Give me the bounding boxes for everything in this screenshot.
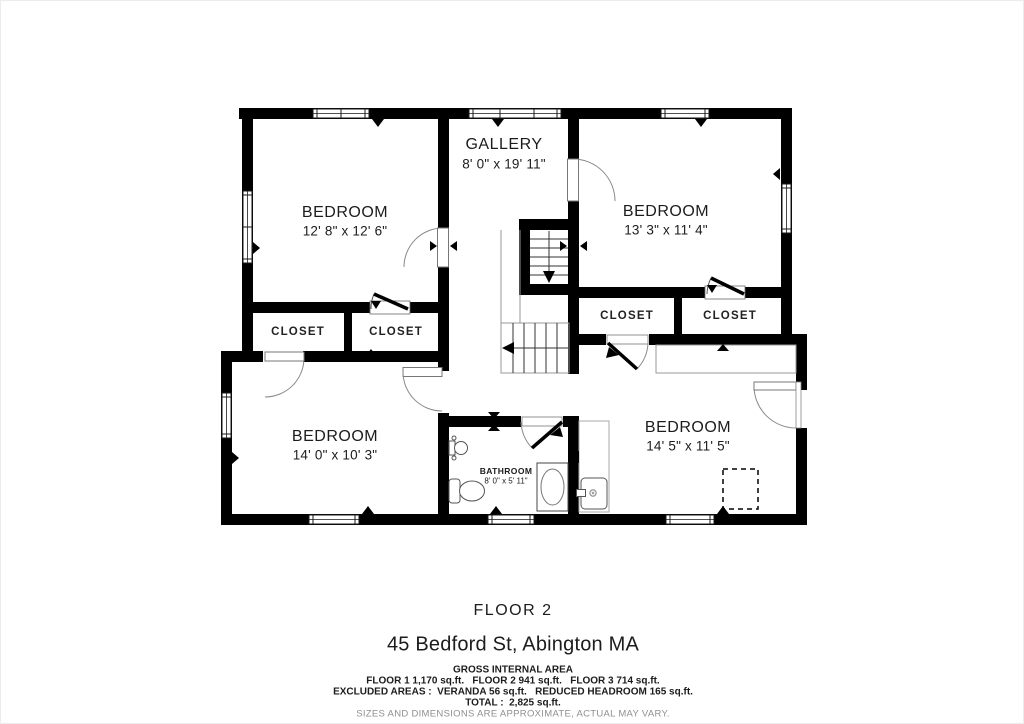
window-bedroom2-top [661,109,709,118]
excluded-areas-line: EXCLUDED AREAS : VERANDA 56 sq.ft. REDUC… [333,687,693,698]
room-label-bedroom-1: BEDROOM [302,204,388,222]
room-label-closet-3: CLOSET [600,310,654,322]
door-closet2-sliding [370,294,410,314]
door-bedroom4-right [754,382,801,428]
room-dims-bedroom-3: 14' 0" x 10' 3" [293,448,378,463]
floorplan-page: BEDROOM 12' 8" x 12' 6" GALLERY 8' 0" x … [0,0,1024,724]
window-bedroom1-top [313,109,369,118]
gross-area-title: GROSS INTERNAL AREA [453,665,573,676]
door-bedroom2 [568,159,616,201]
window-bedroom4-bottom [666,515,714,524]
room-dims-bathroom: 8' 0" x 5' 11" [484,477,527,486]
room-label-closet-1: CLOSET [271,326,325,338]
door-closet1 [265,352,304,397]
door-bathroom [521,417,563,448]
window-bedroom2-right [782,184,791,233]
room-label-gallery: GALLERY [465,136,542,154]
floor-label: FLOOR 2 [474,602,553,620]
window-bedroom3-left [222,393,231,438]
room-dims-bedroom-4: 14' 5" x 11' 5" [646,439,730,454]
room-label-bedroom-2: BEDROOM [623,203,709,221]
door-bedroom1 [404,228,449,267]
window-gallery-top [469,109,561,118]
area-breakdown-line: FLOOR 1 1,170 sq.ft. FLOOR 2 941 sq.ft. … [366,676,659,687]
room-dims-bedroom-1: 12' 8" x 12' 6" [303,224,388,239]
disclaimer-text: SIZES AND DIMENSIONS ARE APPROXIMATE, AC… [356,709,670,720]
total-area-line: TOTAL : 2,825 sq.ft. [465,698,561,709]
address-title: 45 Bedford St, Abington MA [387,634,639,657]
stairs-icon [501,230,569,373]
door-bedroom3-hall [403,368,442,412]
shower-icon [577,421,610,512]
window-bedroom3-bottom [309,515,359,524]
attic-hatch-dashed [723,469,758,509]
room-dims-gallery: 8' 0" x 19' 11" [462,157,546,172]
toilet-icon [449,479,485,503]
room-label-closet-4: CLOSET [703,310,757,322]
window-bedroom1-left [243,191,252,263]
room-label-bathroom: BATHROOM [480,466,533,476]
door-closet4-sliding [705,278,745,299]
bathtub-icon [537,463,568,511]
room-label-bedroom-3: BEDROOM [292,428,378,446]
sink-icon [449,436,468,460]
room-label-closet-2: CLOSET [369,326,423,338]
door-bedroom4-closet [606,335,648,369]
room-label-bedroom-4: BEDROOM [645,419,731,437]
window-bathroom-bottom [488,515,534,524]
room-dims-bedroom-2: 13' 3" x 11' 4" [624,223,708,238]
